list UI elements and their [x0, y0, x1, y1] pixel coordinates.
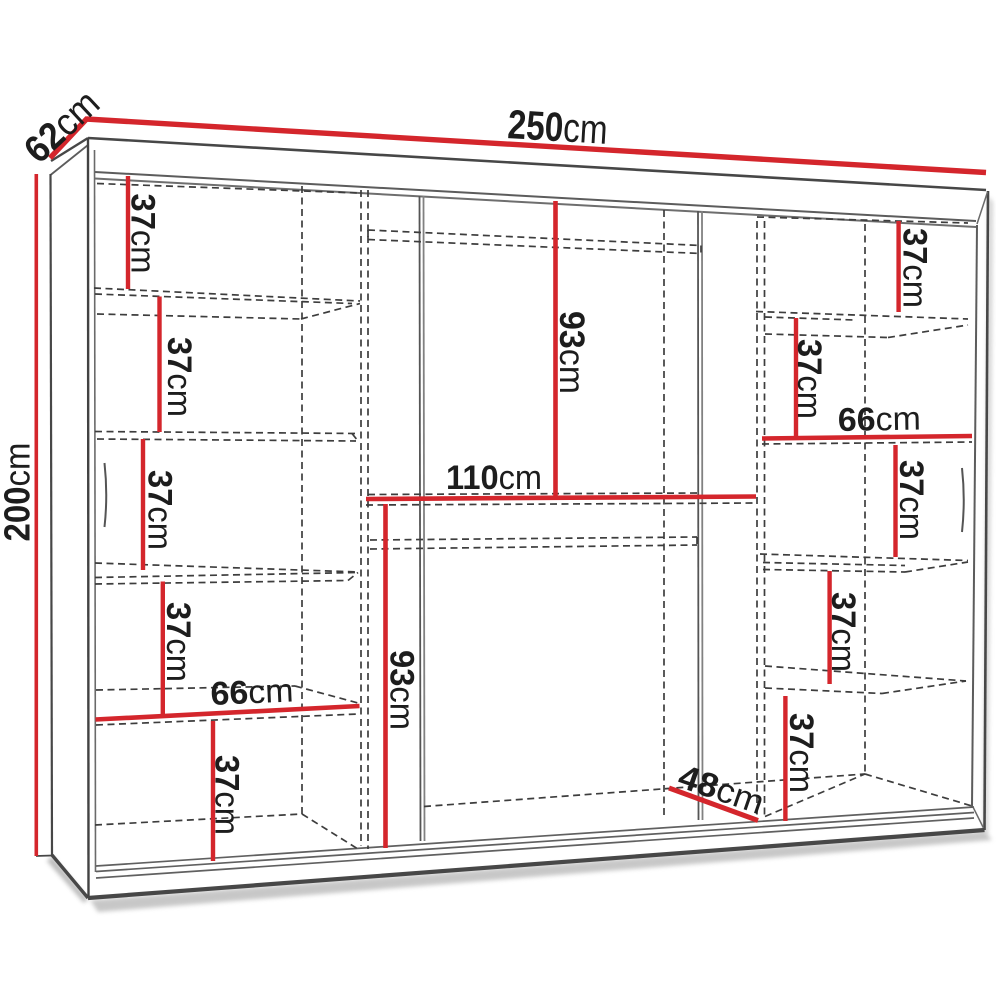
svg-text:37cm: 37cm — [892, 460, 930, 540]
svg-text:110cm: 110cm — [446, 459, 542, 497]
svg-text:37cm: 37cm — [159, 602, 197, 682]
svg-text:250cm: 250cm — [506, 101, 609, 153]
svg-text:37cm: 37cm — [824, 592, 862, 672]
svg-text:37cm: 37cm — [896, 228, 934, 308]
svg-text:37cm: 37cm — [782, 713, 820, 793]
svg-text:37cm: 37cm — [160, 337, 198, 417]
svg-text:37cm: 37cm — [790, 339, 828, 419]
svg-text:66cm: 66cm — [210, 671, 295, 712]
svg-text:66cm: 66cm — [837, 400, 921, 438]
svg-text:93cm: 93cm — [383, 650, 421, 730]
svg-text:200cm: 200cm — [0, 443, 38, 542]
svg-text:93cm: 93cm — [552, 311, 591, 394]
svg-text:37cm: 37cm — [141, 470, 179, 550]
svg-text:37cm: 37cm — [124, 194, 162, 274]
svg-text:37cm: 37cm — [208, 755, 246, 835]
